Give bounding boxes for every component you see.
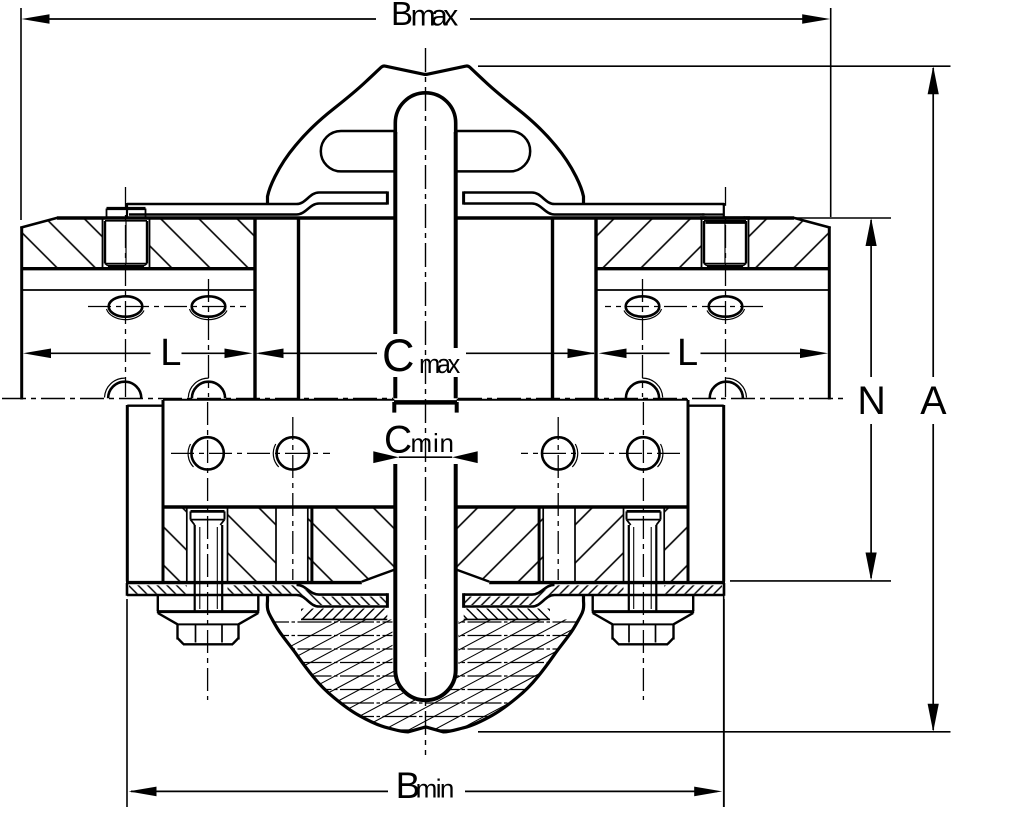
svg-text:min: min xyxy=(411,428,455,458)
svg-text:min: min xyxy=(416,774,455,804)
svg-text:max: max xyxy=(419,351,461,379)
svg-text:L: L xyxy=(677,332,698,374)
svg-text:N: N xyxy=(857,379,885,423)
svg-text:C: C xyxy=(384,419,412,462)
svg-text:L: L xyxy=(160,332,181,374)
svg-text:C: C xyxy=(382,330,415,381)
svg-text:max: max xyxy=(411,0,459,32)
svg-text:A: A xyxy=(920,379,947,423)
